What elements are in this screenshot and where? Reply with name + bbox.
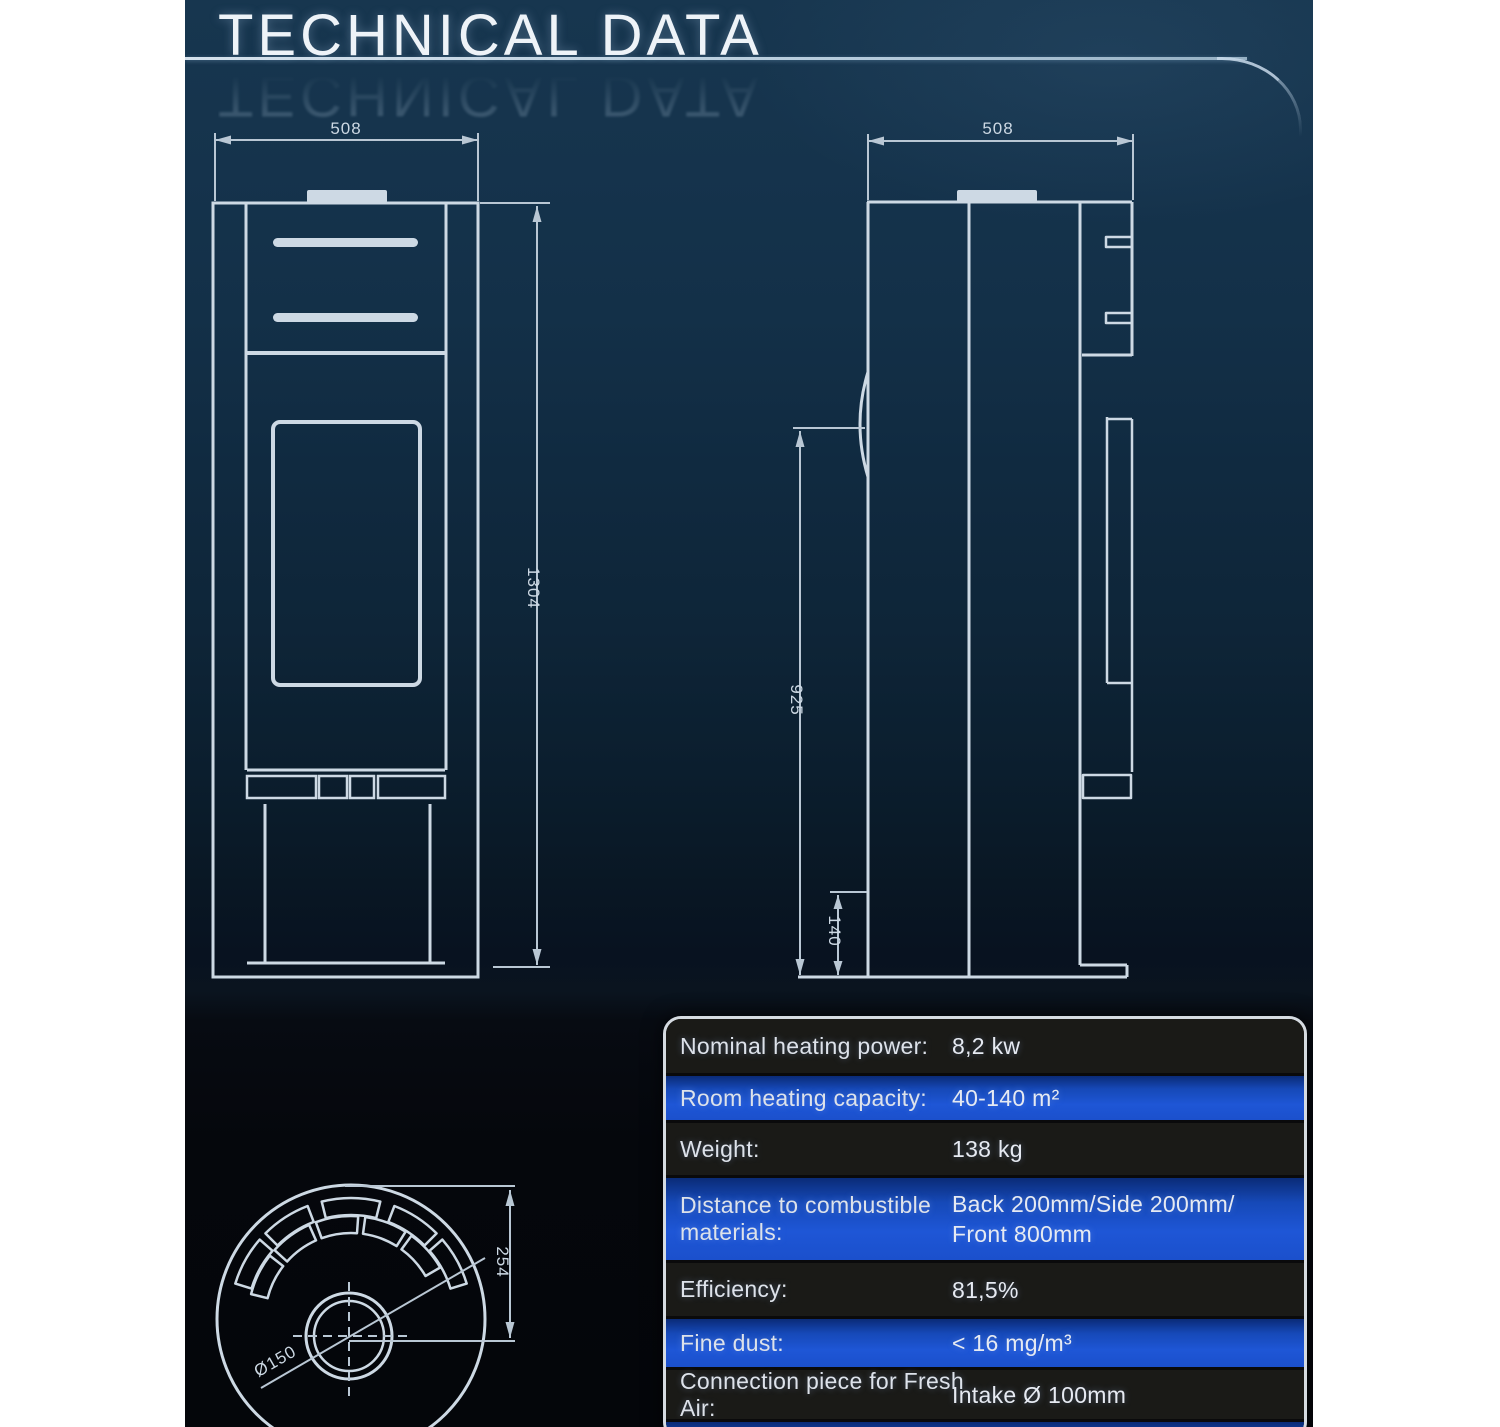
- table-row: Weight:138 kg: [666, 1120, 1304, 1175]
- spec-label: Room heating capacity:: [680, 1085, 927, 1112]
- table-row: Fine dust:< 16 mg/m³: [666, 1316, 1304, 1367]
- table-row: Distance to combustible materials:Back 2…: [666, 1175, 1304, 1260]
- spec-label: Fine dust:: [680, 1330, 784, 1357]
- side-door-height-dim-label: 925: [787, 684, 806, 715]
- top-vent-slot: [251, 1256, 283, 1299]
- side-depth-dim-label: 508: [982, 119, 1013, 138]
- spec-value: 40-140 m²: [952, 1083, 1296, 1113]
- spec-label: Weight:: [680, 1136, 760, 1163]
- flue-offset-dim-label: 254: [493, 1246, 512, 1277]
- spec-value-line: Front 800mm: [952, 1221, 1092, 1247]
- datasheet-page: TECHNICAL DATA TECHNICAL DATA 508: [185, 0, 1313, 1427]
- table-row: Nominal heating power:8,2 kw: [666, 1019, 1304, 1073]
- spec-value-line: < 16 mg/m³: [952, 1330, 1072, 1356]
- spec-value-line: 8,2 kw: [952, 1033, 1020, 1059]
- top-vent-slot: [363, 1217, 406, 1246]
- spec-value: < 16 mg/m³: [952, 1328, 1296, 1358]
- side-base-height-dim-label: 140: [825, 915, 844, 946]
- spec-value-line: Back 200mm/Side 200mm/: [952, 1191, 1235, 1217]
- front-height-dim-label: 1304: [524, 567, 543, 609]
- spec-value-line: 81,5%: [952, 1277, 1019, 1303]
- spec-value: Back 200mm/Side 200mm/Front 800mm: [952, 1189, 1296, 1249]
- front-vent-slat: [273, 313, 418, 322]
- top-view-body-circle: [217, 1185, 485, 1427]
- spec-value: 8,2 kw: [952, 1031, 1296, 1061]
- top-vent-slot: [430, 1240, 467, 1289]
- side-rear-connection: [1083, 775, 1131, 798]
- spec-label: Efficiency:: [680, 1276, 788, 1303]
- front-top-collar: [307, 190, 387, 203]
- spec-label: Nominal heating power:: [680, 1033, 928, 1060]
- spec-value-line: 138 kg: [952, 1136, 1023, 1162]
- spec-value: 81,5%: [952, 1275, 1296, 1305]
- front-width-dim-label: 508: [330, 119, 361, 138]
- front-door-window: [273, 422, 420, 685]
- spec-table: Nominal heating power:8,2 kwRoom heating…: [663, 1016, 1307, 1427]
- side-view: 508: [787, 119, 1133, 977]
- spec-value: Intake Ø 100mm: [952, 1380, 1296, 1410]
- top-view: Ø150 254: [217, 1185, 515, 1427]
- side-rear-vent-slat: [1106, 237, 1132, 247]
- side-rear-vent-slat: [1106, 313, 1132, 323]
- flue-diameter-dim-label: Ø150: [251, 1342, 300, 1381]
- table-row: [666, 1419, 1304, 1427]
- front-view: 508: [213, 119, 550, 977]
- spec-value: 138 kg: [952, 1134, 1296, 1164]
- spec-value-line: 40-140 m²: [952, 1085, 1060, 1111]
- side-top-collar: [957, 190, 1037, 202]
- table-row: Connection piece for Fresh Air:Intake Ø …: [666, 1367, 1304, 1419]
- top-vent-slot: [316, 1216, 358, 1238]
- table-row: Efficiency:81,5%: [666, 1260, 1304, 1316]
- table-row: Room heating capacity:40-140 m²: [666, 1073, 1304, 1120]
- front-vent-slat: [273, 238, 418, 247]
- spec-value-line: Intake Ø 100mm: [952, 1382, 1126, 1408]
